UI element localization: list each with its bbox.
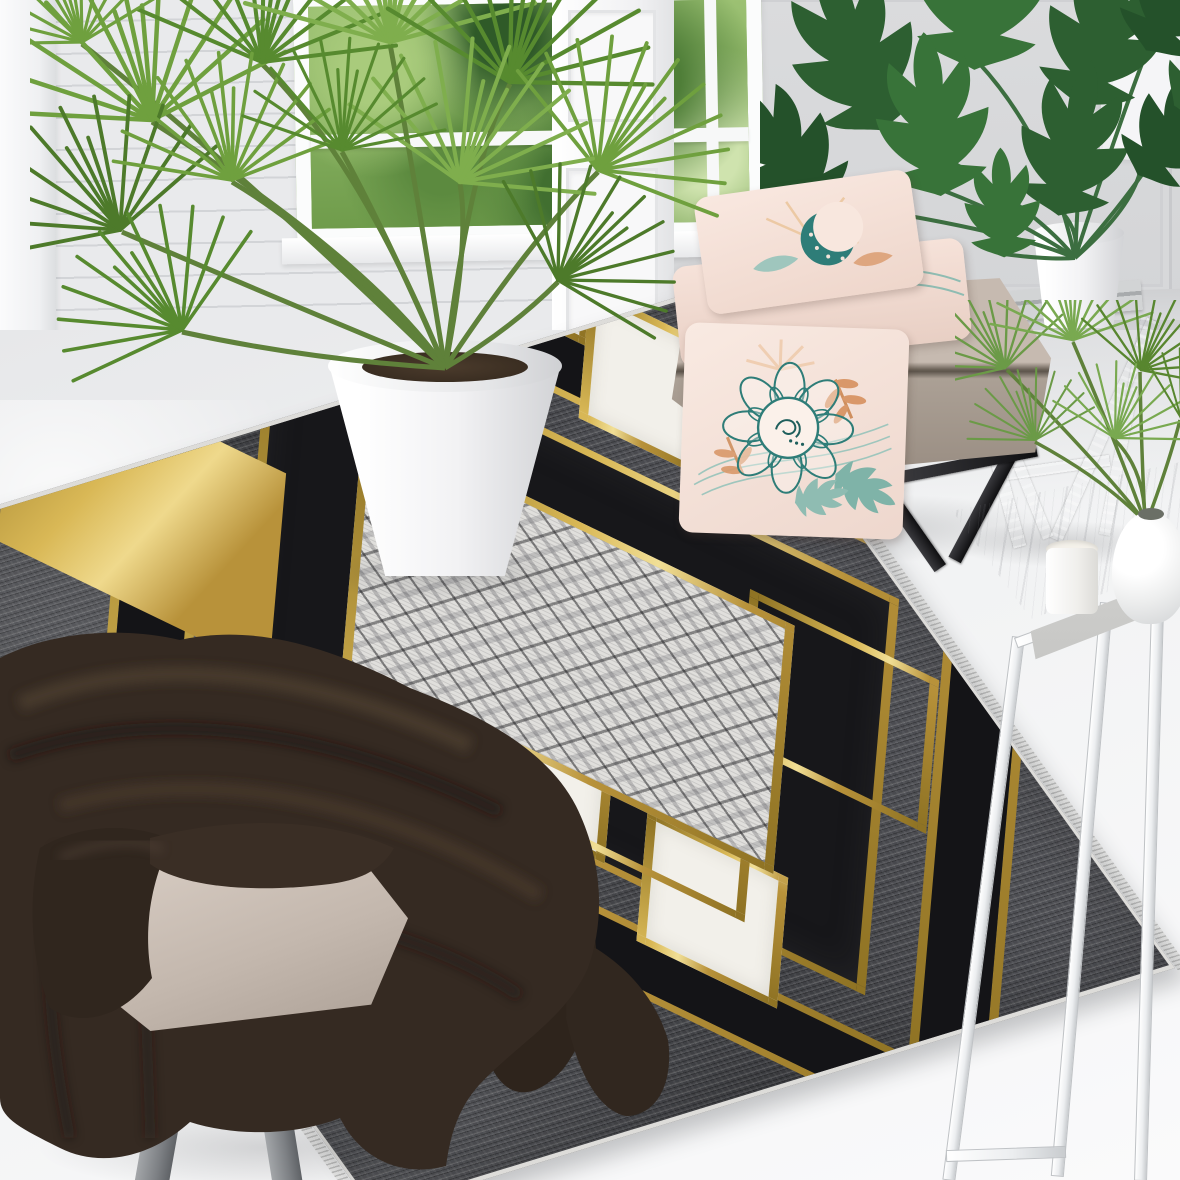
fan-palm-plant	[30, 0, 730, 560]
round-vase	[1112, 512, 1180, 624]
candle	[1046, 548, 1098, 614]
blanket-front-fold	[0, 598, 740, 1180]
vase-mouth	[1138, 508, 1164, 520]
scene	[0, 0, 1180, 1180]
